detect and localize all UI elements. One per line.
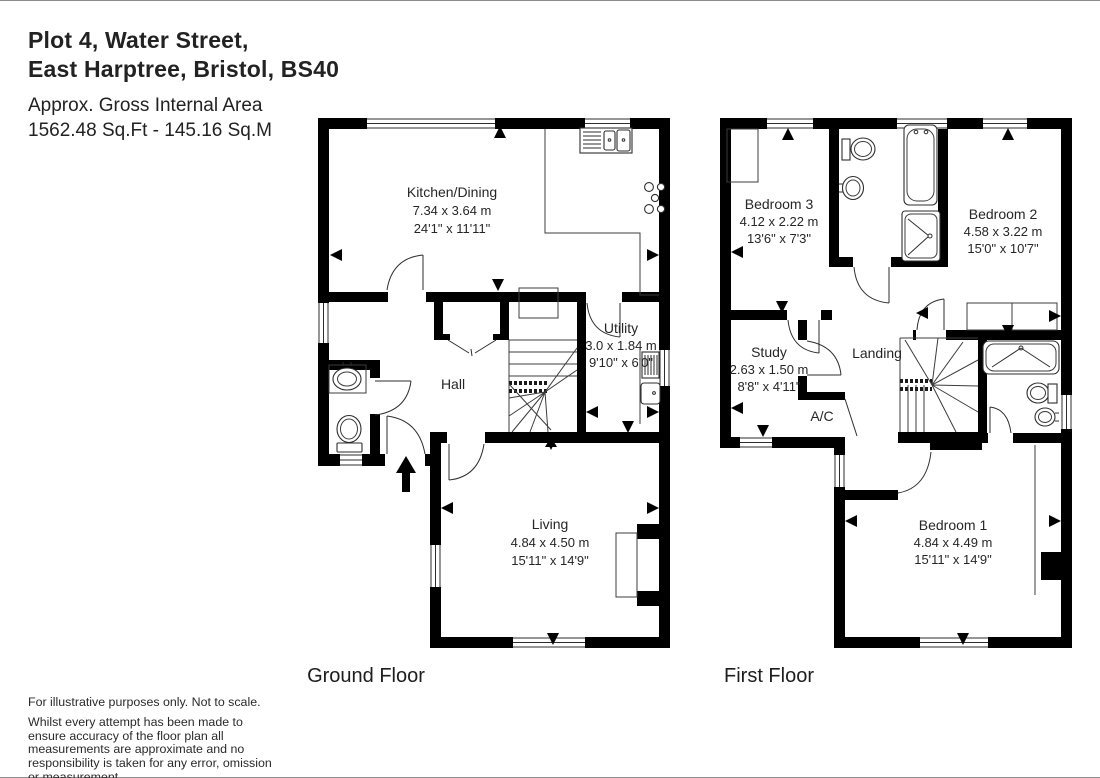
entrance-door	[387, 416, 425, 454]
disclaimer: For illustrative purposes only. Not to s…	[28, 696, 276, 778]
bedroom2-window	[983, 118, 1027, 129]
bedroom3-metric: 4.12 x 2.22 m	[740, 214, 819, 229]
utility-sink	[641, 383, 660, 404]
utility-window	[659, 350, 670, 386]
bedroom1-name: Bedroom 1	[919, 517, 988, 533]
living-fireplace	[616, 524, 659, 606]
bath	[904, 125, 937, 205]
landing-name: Landing	[852, 345, 902, 361]
bedroom1-chimney	[1041, 552, 1072, 580]
bedroom1-window	[920, 637, 988, 648]
kitchen-top-window	[367, 118, 495, 129]
first-stairs	[900, 338, 978, 432]
sink-window	[585, 118, 630, 129]
ground-floor-plan: Kitchen/Dining 7.34 x 3.64 m 24'1" x 11'…	[318, 118, 670, 648]
kitchen-metric: 7.34 x 3.64 m	[413, 203, 492, 218]
living-name: Living	[532, 516, 569, 532]
wc-fixtures	[329, 362, 366, 452]
bedroom3-imperial: 13'6" x 7'3"	[747, 231, 811, 246]
ground-stairs	[509, 340, 577, 432]
living-left-window	[430, 545, 441, 587]
kitchen-fixtures	[519, 128, 665, 318]
living-metric: 4.84 x 4.50 m	[511, 535, 590, 550]
ac-door	[845, 399, 857, 436]
wc-window	[340, 454, 362, 466]
hall-left-window	[318, 303, 329, 343]
ensuite-fixtures	[983, 341, 1059, 426]
bedroom1-door	[898, 452, 931, 493]
utility-name: Utility	[604, 320, 638, 336]
ground-floor-label: Ground Floor	[281, 665, 451, 688]
study-door	[807, 341, 841, 375]
hall-closet-doors	[448, 340, 496, 356]
floorplan-page: Plot 4, Water Street, East Harptree, Bri…	[0, 0, 1100, 778]
bedroom3-window	[767, 118, 813, 129]
bedroom2-name: Bedroom 2	[969, 206, 1038, 222]
living-imperial: 15'11" x 14'9"	[511, 553, 589, 568]
bedroom2-metric: 4.58 x 3.22 m	[964, 224, 1043, 239]
bedroom2-imperial: 15'0" x 10'7"	[967, 241, 1039, 256]
bedroom1-imperial: 15'11" x 14'9"	[914, 552, 992, 567]
bedroom3-name: Bedroom 3	[745, 196, 814, 212]
shower	[902, 211, 940, 261]
bathroom-door	[854, 267, 889, 303]
utility-imperial: 9'10" x 6'0"	[589, 355, 653, 370]
ensuite-door	[990, 407, 1011, 433]
hall-name: Hall	[441, 376, 465, 392]
disclaimer-paragraph: Whilst every attempt has been made to en…	[28, 716, 276, 778]
first-floor-label: First Floor	[684, 665, 854, 688]
kitchen-imperial: 24'1" x 11'11"	[414, 221, 491, 236]
kitchen-counter	[545, 129, 659, 295]
bedroom1-metric: 4.84 x 4.49 m	[914, 535, 993, 550]
kitchen-name: Kitchen/Dining	[407, 184, 497, 200]
disclaimer-line1: For illustrative purposes only. Not to s…	[28, 696, 276, 710]
study-name: Study	[751, 344, 787, 360]
kitchen-door	[387, 255, 423, 290]
kitchen-sink	[580, 128, 632, 153]
first-floor-plan: Bedroom 3 4.12 x 2.22 m 13'6" x 7'3" Bed…	[720, 118, 1072, 648]
ensuite-window	[1061, 395, 1072, 429]
study-metric: 2.63 x 1.50 m	[730, 362, 809, 377]
first-room-labels: Bedroom 3 4.12 x 2.22 m 13'6" x 7'3" Bed…	[730, 196, 1043, 567]
living-bottom-window	[513, 637, 585, 648]
landing-left-window	[834, 455, 845, 487]
study-imperial: 8'8" x 4'11"	[737, 379, 800, 394]
bedroom3-wardrobe	[727, 129, 758, 182]
bathroom-fixtures	[839, 125, 940, 261]
utility-metric: 3.0 x 1.84 m	[585, 338, 657, 353]
bathroom-toilet-tank	[842, 139, 850, 160]
floorplan-canvas: Kitchen/Dining 7.34 x 3.64 m 24'1" x 11'…	[0, 0, 1100, 778]
wc-door	[375, 381, 411, 415]
study-window	[740, 437, 772, 448]
living-door	[449, 444, 484, 480]
ac-name: A/C	[810, 408, 833, 424]
